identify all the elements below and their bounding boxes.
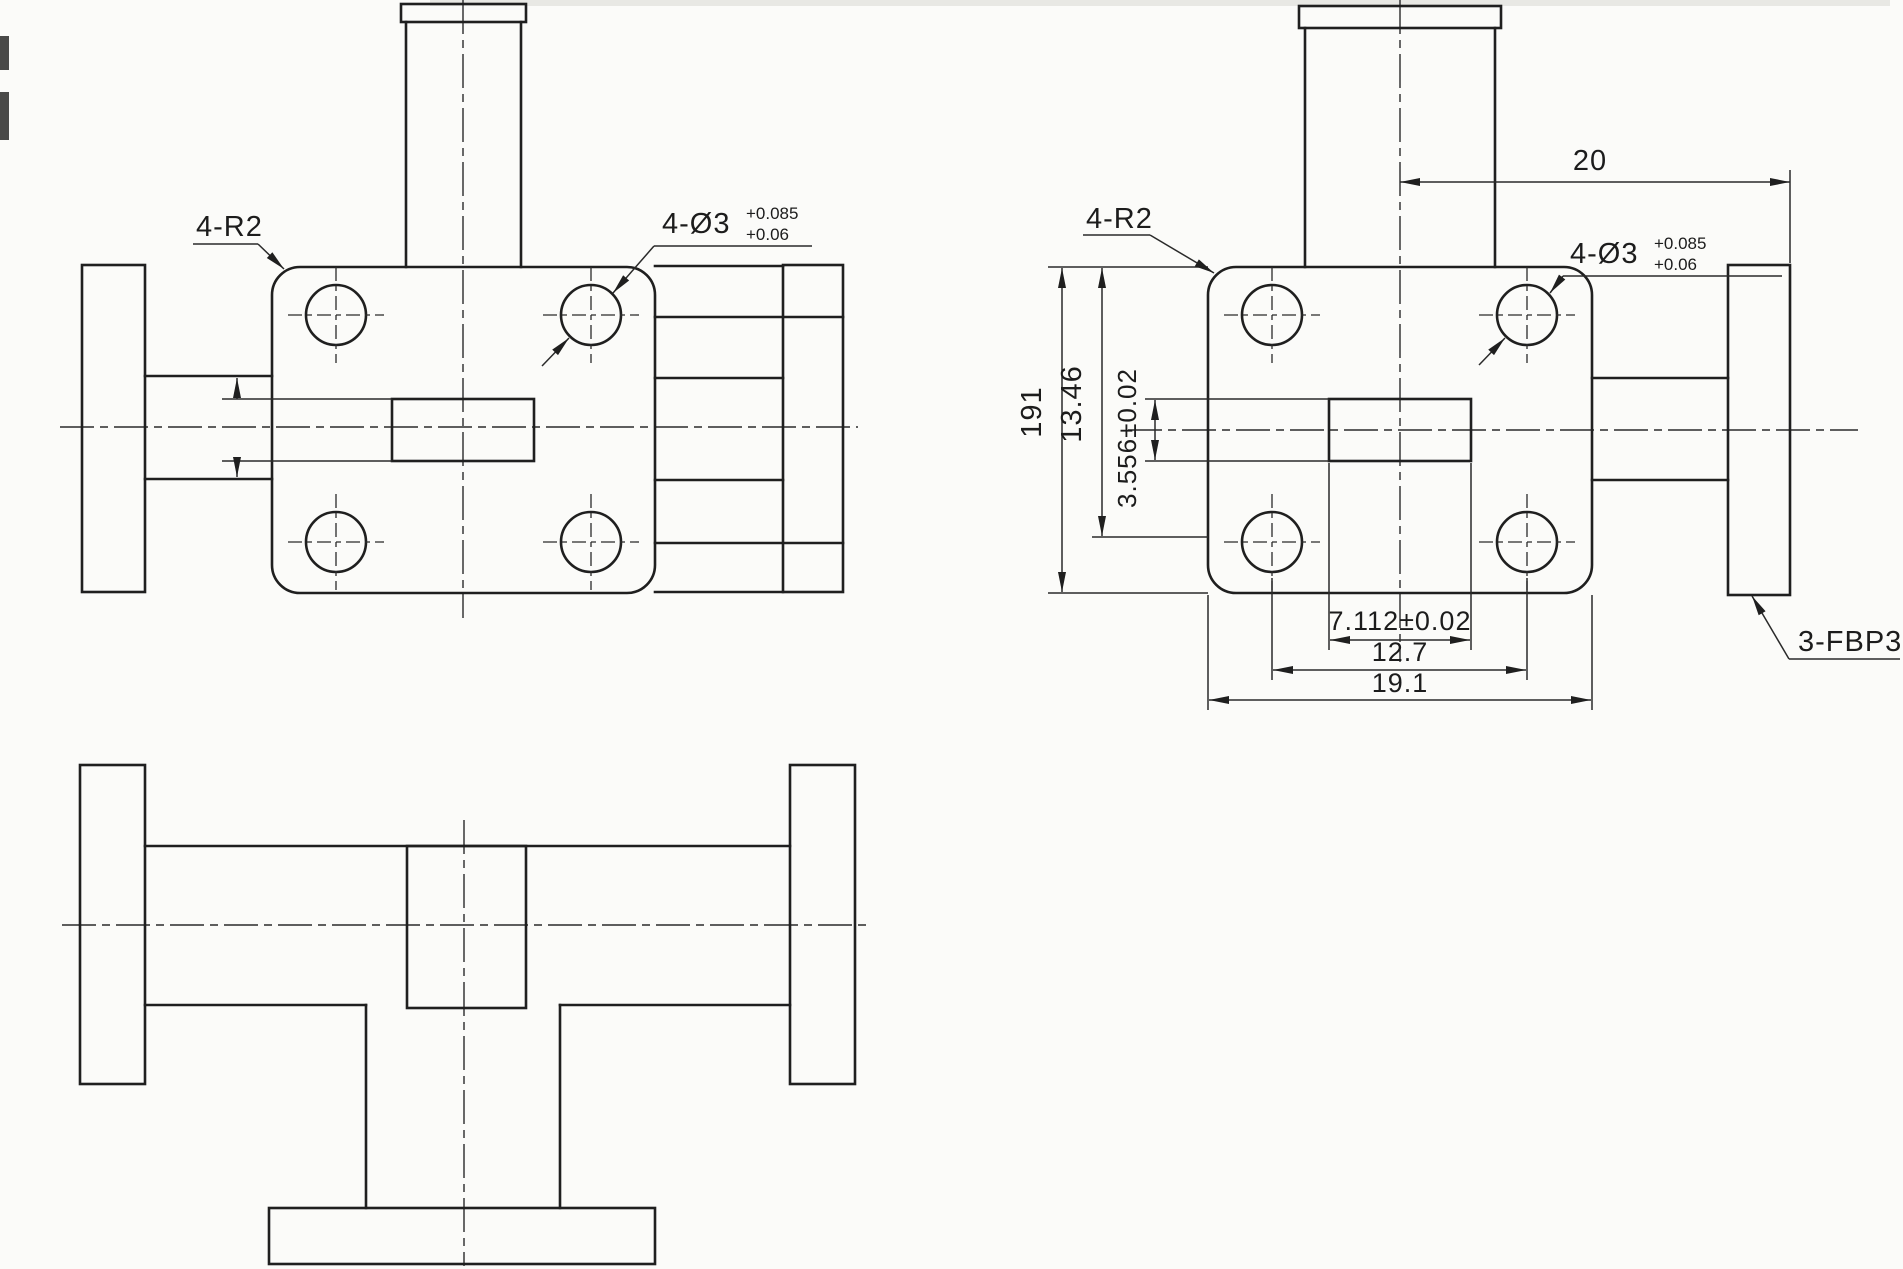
side-dim191-text: 191 — [1016, 386, 1048, 437]
side-dim7112-text: 7.112±0.02 — [1329, 606, 1472, 636]
side-corner-radius-label: 4-R2 — [1086, 203, 1153, 235]
front-holes-leader-arrow — [613, 246, 654, 293]
side-holes-label: 4-Ø3 — [1570, 238, 1638, 270]
bottom-center-tube-section — [407, 846, 526, 1008]
technical-drawing: 4-R2 4-Ø3 +0.085 +0.06 — [0, 0, 1903, 1269]
side-flange-leader-arrow — [1752, 596, 1789, 659]
bottom-flange — [269, 1208, 655, 1264]
drawing-page: 4-R2 4-Ø3 +0.085 +0.06 — [0, 0, 1903, 1269]
front-left-flange — [82, 265, 145, 592]
side-holes-diameter-arrow — [1479, 338, 1505, 365]
side-dim1346-text: 13.46 — [1056, 365, 1088, 443]
side-holes-tol-lower: +0.06 — [1654, 255, 1697, 274]
side-view: 20 191 13.46 3.556±0.02 7.112±0.02 12.7 — [1016, 0, 1903, 710]
side-dim20-text: 20 — [1573, 145, 1607, 177]
front-holes-tol-upper: +0.085 — [746, 204, 798, 223]
front-holes-label: 4-Ø3 — [662, 208, 730, 240]
side-dim127-text: 12.7 — [1372, 637, 1429, 667]
scan-artifacts — [0, 0, 1890, 140]
front-holes-tol-lower: +0.06 — [746, 225, 789, 244]
side-holes-tol-upper: +0.085 — [1654, 234, 1706, 253]
side-dim191w-text: 19.1 — [1372, 668, 1429, 698]
bottom-view — [62, 765, 872, 1266]
side-dim3556-text: 3.556±0.02 — [1112, 368, 1142, 508]
front-corner-leader-arrow — [258, 244, 284, 269]
side-flange-type-label: 3-FBP32 — [1798, 626, 1903, 658]
front-holes-diameter-arrow — [542, 338, 569, 366]
front-view: 4-R2 4-Ø3 +0.085 +0.06 — [60, 0, 858, 618]
side-holes-leader-arrow — [1550, 276, 1563, 293]
front-corner-radius-label: 4-R2 — [196, 211, 263, 243]
